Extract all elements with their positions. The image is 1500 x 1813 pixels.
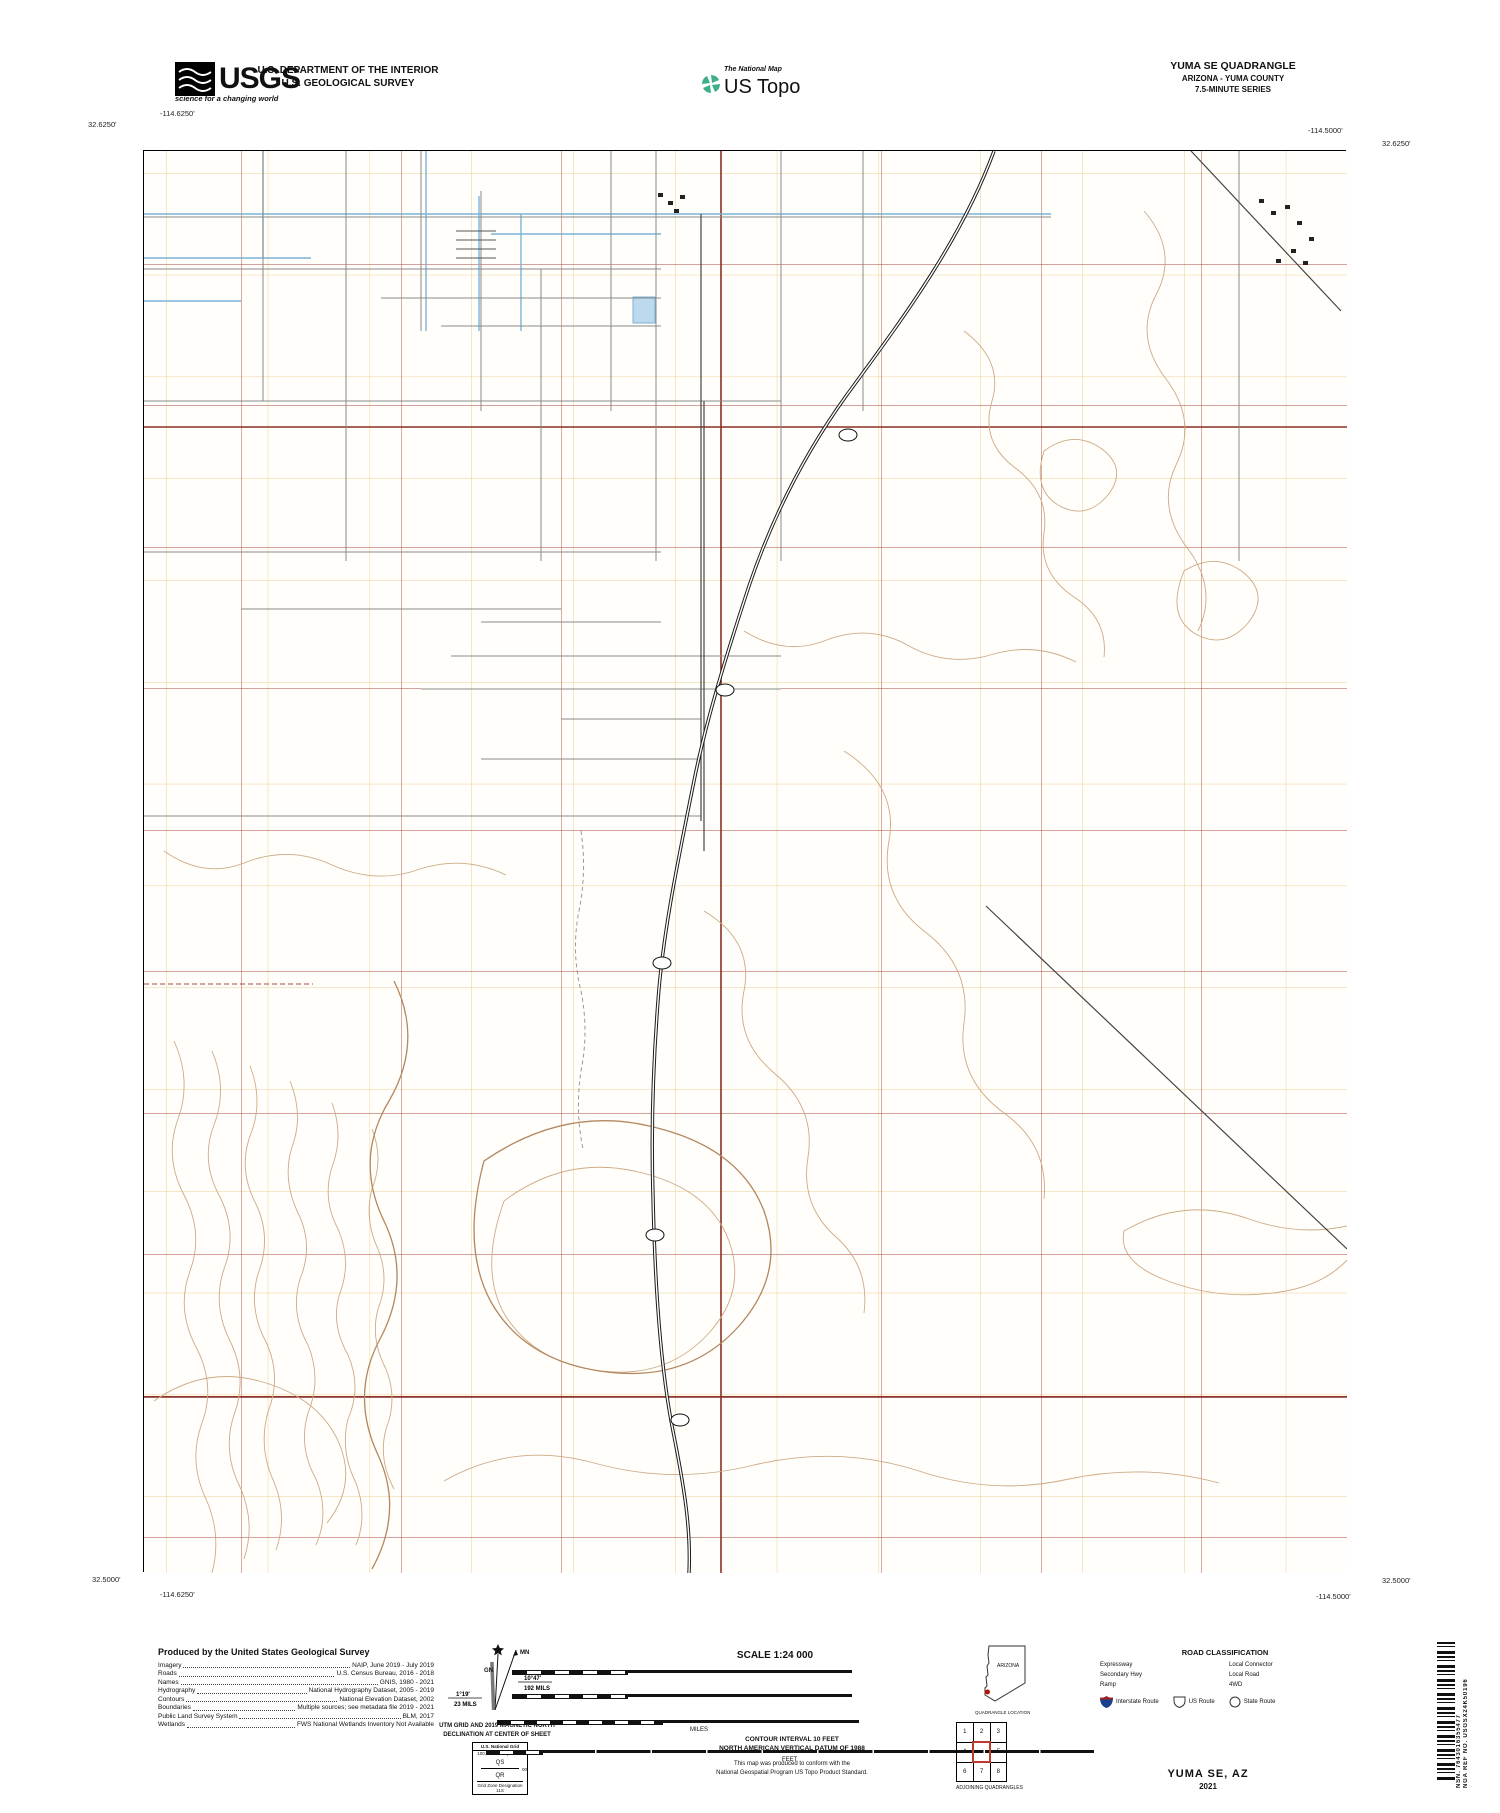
scale-bar-km-right bbox=[626, 1670, 852, 1673]
quadrangle-location: ARIZONA QUADRANGLE LOCATION bbox=[975, 1645, 1030, 1715]
source-value: Multiple sources; see metadata file 2019… bbox=[297, 1704, 434, 1713]
nga-ref-code: NGA REF NO. USGSX24K50196 bbox=[1463, 1638, 1469, 1788]
route-195-shield bbox=[653, 957, 672, 970]
conformance-note: This map was produced to conform with th… bbox=[716, 1760, 868, 1777]
mn-label: MN bbox=[520, 1650, 529, 1656]
sheet-title: YUMA SE, AZ 2021 bbox=[1167, 1768, 1248, 1791]
road-legend-row: 4WD bbox=[1229, 1682, 1350, 1688]
contour-notes: CONTOUR INTERVAL 10 FEET NORTH AMERICAN … bbox=[719, 1735, 865, 1753]
dotted-leader bbox=[186, 1696, 337, 1703]
quadrangle-title: YUMA SE QUADRANGLE ARIZONA - YUMA COUNTY… bbox=[1170, 60, 1296, 94]
corner-coord-bl-lon: -114.6250' bbox=[160, 1590, 195, 1599]
corner-coord-tl-lon: -114.6250' bbox=[160, 109, 195, 118]
scale-bar-m-left bbox=[512, 1694, 628, 1699]
data-source-row: Names GNIS, 1980 - 2021 bbox=[158, 1679, 434, 1688]
dotted-leader bbox=[197, 1687, 306, 1694]
state-route-circle-icon bbox=[1229, 1696, 1241, 1708]
dotted-leader bbox=[181, 1679, 378, 1686]
us-route-shield-icon bbox=[1173, 1696, 1186, 1708]
quad-state-county: ARIZONA - YUMA COUNTY bbox=[1170, 74, 1296, 83]
conformance-line2: National Geospatial Program US Topo Prod… bbox=[716, 1769, 868, 1778]
usng-gzd-value: 11S bbox=[477, 1788, 523, 1793]
declination-diagram: GN MN 10°47' 192 MILS 1°19' 23 MILS bbox=[440, 1640, 560, 1723]
source-name: Names bbox=[158, 1679, 179, 1688]
source-value: National Elevation Dataset, 2002 bbox=[339, 1696, 434, 1705]
adjoining-grid: 123 45 678 bbox=[956, 1722, 1007, 1782]
road-legend-col1: Expressway Secondary Hwy Ramp bbox=[1100, 1662, 1221, 1692]
dotted-leader bbox=[187, 1721, 295, 1728]
map-graphics bbox=[144, 151, 1347, 1573]
road-type-label: 4WD bbox=[1229, 1682, 1242, 1688]
quad-location-caption: QUADRANGLE LOCATION bbox=[975, 1710, 1030, 1715]
ustopo-logo: The National Map US Topo bbox=[700, 66, 800, 101]
dotted-leader bbox=[193, 1704, 296, 1711]
source-value: GNIS, 1980 - 2021 bbox=[380, 1679, 434, 1688]
dept-line2: U.S. GEOLOGICAL SURVEY bbox=[258, 77, 439, 90]
source-name: Boundaries bbox=[158, 1704, 191, 1713]
current-quad-cell bbox=[973, 1742, 990, 1762]
data-source-row: Boundaries Multiple sources; see metadat… bbox=[158, 1704, 434, 1713]
road-legend-row: Local Connector bbox=[1229, 1662, 1350, 1668]
contour-interval-note: CONTOUR INTERVAL 10 FEET bbox=[719, 1735, 865, 1744]
map-canvas bbox=[143, 150, 1346, 1572]
usng-square-1: QS bbox=[496, 1760, 505, 1766]
road-legend-row: Expressway bbox=[1100, 1662, 1221, 1668]
road-type-label: Secondary Hwy bbox=[1100, 1672, 1142, 1678]
state-route-label: State Route bbox=[1244, 1699, 1276, 1705]
corner-coord-br-lon: -114.5000' bbox=[1316, 1592, 1351, 1601]
corner-coord-tr-lat: 32.6250' bbox=[1382, 139, 1411, 148]
ustopo-wordmark: US Topo bbox=[724, 76, 800, 99]
road-type-label: Local Connector bbox=[1229, 1662, 1273, 1668]
dept-line1: U.S. DEPARTMENT OF THE INTERIOR bbox=[258, 64, 439, 77]
source-value: NAIP, June 2019 - July 2019 bbox=[352, 1662, 434, 1671]
department-heading: U.S. DEPARTMENT OF THE INTERIOR U.S. GEO… bbox=[258, 64, 439, 90]
road-classification: ROAD CLASSIFICATION Expressway Secondary… bbox=[1100, 1648, 1350, 1708]
source-name: Wetlands bbox=[158, 1721, 185, 1730]
source-name: Hydrography bbox=[158, 1687, 195, 1696]
barcode bbox=[1437, 1642, 1455, 1780]
scale-bar-km-left bbox=[512, 1670, 628, 1675]
corner-coord-tl-lat: 32.6250' bbox=[88, 120, 117, 129]
source-name: Contours bbox=[158, 1696, 184, 1705]
route-195-shield bbox=[671, 1414, 690, 1427]
declination-caption-line2: DECLINATION AT CENTER OF SHEET bbox=[439, 1731, 555, 1740]
pond bbox=[633, 297, 655, 323]
route-195-shield bbox=[839, 429, 858, 442]
quad-location-dot bbox=[985, 1690, 990, 1695]
scale-mi-word: MILES bbox=[690, 1727, 708, 1733]
corner-coord-br-lat: 32.5000' bbox=[1382, 1576, 1411, 1585]
quad-series: 7.5-MINUTE SERIES bbox=[1170, 85, 1296, 94]
interstate-shield-icon bbox=[1100, 1696, 1113, 1708]
scale-title: SCALE 1:24 000 bbox=[737, 1650, 813, 1661]
adjoining-quadrangles: 123 45 678 ADJOINING QUADRANGLES bbox=[956, 1722, 1023, 1791]
corner-coord-bl-lat: 32.5000' bbox=[92, 1575, 121, 1584]
road-legend-row: Local Road bbox=[1229, 1672, 1350, 1678]
road-legend-row: Ramp bbox=[1100, 1682, 1221, 1688]
road-legend-col2: Local Connector Local Road 4WD bbox=[1229, 1662, 1350, 1692]
source-name: Roads bbox=[158, 1670, 177, 1679]
credits-title: Produced by the United States Geological… bbox=[158, 1648, 434, 1657]
source-value: BLM, 2017 bbox=[403, 1713, 434, 1722]
road-classification-title: ROAD CLASSIFICATION bbox=[1100, 1648, 1350, 1657]
arizona-outline bbox=[975, 1645, 1027, 1703]
nsn-code: NSN. 7643016355477 bbox=[1456, 1638, 1462, 1788]
road-legend-row: Secondary Hwy bbox=[1100, 1672, 1221, 1678]
quad-name: YUMA SE QUADRANGLE bbox=[1170, 60, 1296, 72]
route-195-shield bbox=[646, 1229, 665, 1242]
dotted-leader bbox=[183, 1662, 350, 1669]
road-type-label: Local Road bbox=[1229, 1672, 1259, 1678]
us-route-label: US Route bbox=[1189, 1699, 1215, 1705]
data-source-row: Contours National Elevation Dataset, 200… bbox=[158, 1696, 434, 1705]
mn-declination-value: 10°47' bbox=[524, 1676, 542, 1682]
source-name: Public Land Survey System bbox=[158, 1713, 237, 1722]
route-195-shield bbox=[716, 684, 735, 697]
source-value: National Hydrography Dataset, 2005 - 201… bbox=[309, 1687, 434, 1696]
scale-bar-m-right bbox=[626, 1694, 852, 1697]
usng-tick: 00 bbox=[522, 1767, 527, 1772]
corner-coord-tr-lon: -114.5000' bbox=[1308, 126, 1343, 135]
interstate-route-label: Interstate Route bbox=[1116, 1699, 1159, 1705]
mn-declination-mils: 192 MILS bbox=[524, 1686, 550, 1692]
gn-declination-value: 1°19' bbox=[456, 1692, 470, 1698]
usng-square-2: QR bbox=[473, 1771, 527, 1781]
sheet-year: 2021 bbox=[1167, 1782, 1248, 1791]
data-source-row: Public Land Survey System BLM, 2017 bbox=[158, 1713, 434, 1722]
production-credits: Produced by the United States Geological… bbox=[158, 1648, 434, 1730]
true-north-star bbox=[492, 1644, 504, 1655]
scale-bar-ft-left bbox=[486, 1750, 543, 1755]
arizona-label: ARIZONA bbox=[997, 1663, 1019, 1669]
catalog-codes: NSN. 7643016355477 NGA REF NO. USGSX24K5… bbox=[1456, 1638, 1469, 1788]
source-name: Imagery bbox=[158, 1662, 181, 1671]
gn-label: GN bbox=[484, 1668, 493, 1674]
data-source-row: Wetlands FWS National Wetlands Inventory… bbox=[158, 1721, 434, 1730]
source-value: U.S. Census Bureau, 2016 - 2018 bbox=[336, 1670, 434, 1679]
road-type-label: Expressway bbox=[1100, 1662, 1132, 1668]
national-map-label: The National Map bbox=[724, 66, 800, 73]
usgs-wave-icon bbox=[175, 62, 215, 96]
scale-bar-mi-left bbox=[497, 1720, 663, 1725]
road-type-label: Ramp bbox=[1100, 1682, 1116, 1688]
scale-bar-mi-right bbox=[661, 1720, 859, 1723]
data-sources: Imagery NAIP, June 2019 - July 2019 Road… bbox=[158, 1662, 434, 1730]
gn-declination-mils: 23 MILS bbox=[454, 1702, 477, 1708]
adjoining-caption: ADJOINING QUADRANGLES bbox=[956, 1785, 1023, 1791]
vertical-datum-note: NORTH AMERICAN VERTICAL DATUM OF 1988 bbox=[719, 1744, 865, 1753]
data-source-row: Hydrography National Hydrography Dataset… bbox=[158, 1687, 434, 1696]
dotted-leader bbox=[179, 1670, 335, 1677]
source-value: FWS National Wetlands Inventory Not Avai… bbox=[297, 1721, 434, 1730]
data-source-row: Imagery NAIP, June 2019 - July 2019 bbox=[158, 1662, 434, 1671]
dotted-leader bbox=[239, 1713, 400, 1720]
sheet-name: YUMA SE, AZ bbox=[1167, 1768, 1248, 1780]
ustopo-pinwheel-icon bbox=[700, 73, 722, 101]
data-source-row: Roads U.S. Census Bureau, 2016 - 2018 bbox=[158, 1670, 434, 1679]
conformance-line1: This map was produced to conform with th… bbox=[716, 1760, 868, 1769]
